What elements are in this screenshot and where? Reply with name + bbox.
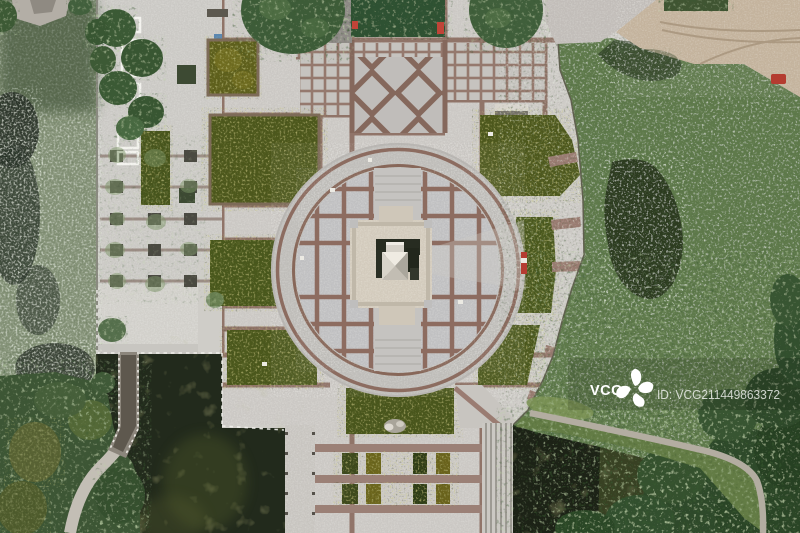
svg-text:ID: VCG211449863372: ID: VCG211449863372 xyxy=(657,387,780,402)
